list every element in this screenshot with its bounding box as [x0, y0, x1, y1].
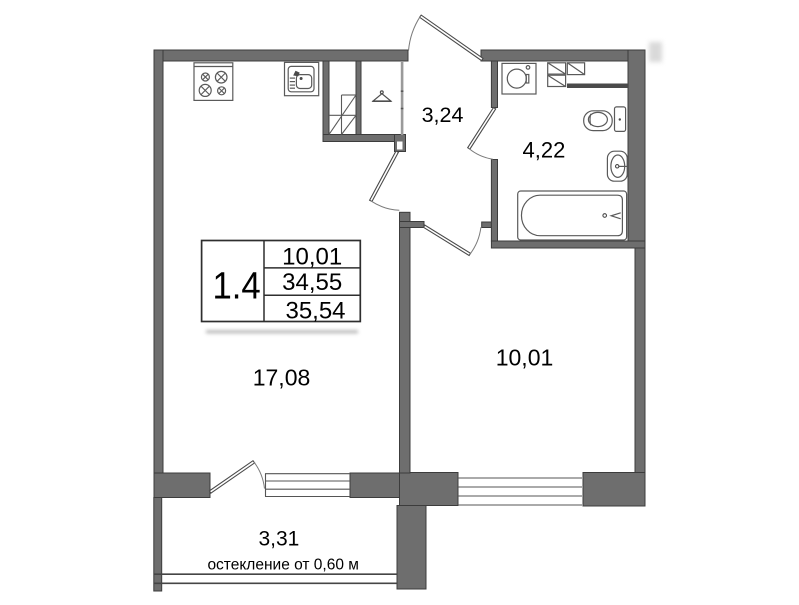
svg-text:35,54: 35,54 [285, 297, 345, 324]
svg-text:остекление от 0,60 м: остекление от 0,60 м [207, 557, 359, 574]
svg-text:3,24: 3,24 [422, 103, 464, 127]
svg-text:10,01: 10,01 [282, 244, 342, 271]
svg-text:17,08: 17,08 [253, 365, 311, 391]
svg-text:4,22: 4,22 [522, 138, 565, 163]
svg-text:34,55: 34,55 [282, 269, 342, 296]
svg-text:3,31: 3,31 [258, 528, 299, 551]
svg-text:10,01: 10,01 [496, 345, 554, 371]
svg-text:1.4: 1.4 [213, 266, 261, 308]
